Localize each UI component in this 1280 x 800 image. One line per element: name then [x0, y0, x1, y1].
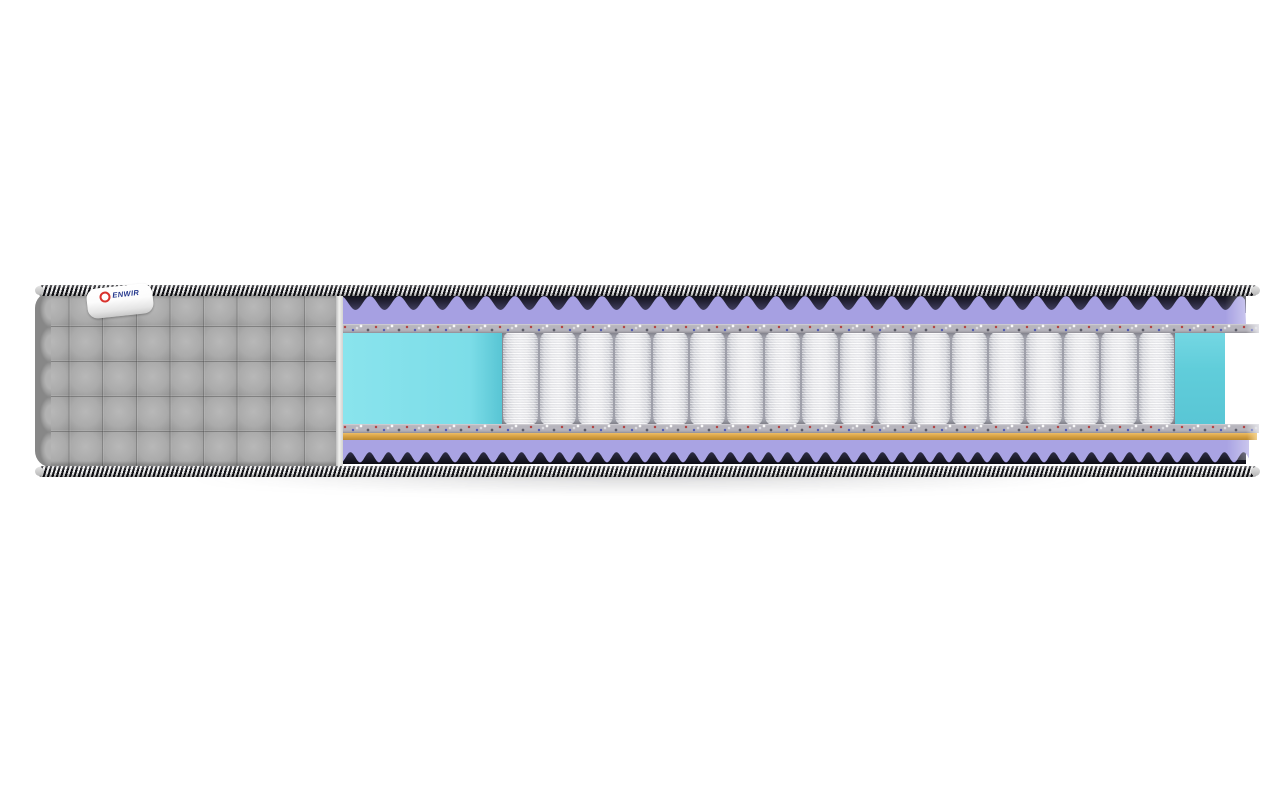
- brand-label-text: ENWIR: [112, 288, 140, 300]
- pocket-spring: [503, 333, 538, 424]
- top-foam-right-face: [1225, 296, 1246, 324]
- pocket-spring: [1139, 333, 1174, 424]
- coir-layer: [341, 433, 1257, 440]
- bottom-foam-wave-path: [341, 440, 1249, 463]
- pocket-springs: [502, 333, 1175, 424]
- felt-layer-bottom: [341, 424, 1259, 433]
- floor-shadow: [28, 477, 1258, 501]
- pocket-spring: [989, 333, 1024, 424]
- pocket-spring: [690, 333, 725, 424]
- pocket-spring: [877, 333, 912, 424]
- felt-layer-top: [341, 324, 1259, 333]
- pocket-spring: [802, 333, 837, 424]
- pocket-spring: [1026, 333, 1061, 424]
- brand-logo-icon: [99, 291, 111, 303]
- pocket-spring: [578, 333, 613, 424]
- mattress-cross-section: [341, 294, 1260, 468]
- piping-rope-top: [37, 285, 1258, 296]
- pocket-spring: [615, 333, 650, 424]
- piping-rope-bottom: [37, 466, 1258, 477]
- pocket-spring: [540, 333, 575, 424]
- product-photo-scene: ENWIR: [0, 0, 1280, 800]
- cover-cut-edge: [336, 293, 343, 467]
- top-foam-layer: [341, 294, 1246, 324]
- pocket-spring: [1064, 333, 1099, 424]
- pocket-spring: [952, 333, 987, 424]
- core-row: [341, 333, 1260, 424]
- pocket-spring: [653, 333, 688, 424]
- mattress-cutaway: ENWIR: [35, 285, 1260, 477]
- foam-block-left: [341, 333, 502, 424]
- quilted-cover: [35, 292, 338, 467]
- bottom-foam-right-face: [1227, 440, 1249, 460]
- pocket-spring: [840, 333, 875, 424]
- pocket-spring: [727, 333, 762, 424]
- top-foam-wave-path: [341, 296, 1246, 324]
- pocket-spring: [1101, 333, 1136, 424]
- foam-edge-panel-right: [1175, 333, 1225, 424]
- bottom-foam-layer: [341, 440, 1249, 463]
- pocket-spring: [765, 333, 800, 424]
- pocket-spring: [914, 333, 949, 424]
